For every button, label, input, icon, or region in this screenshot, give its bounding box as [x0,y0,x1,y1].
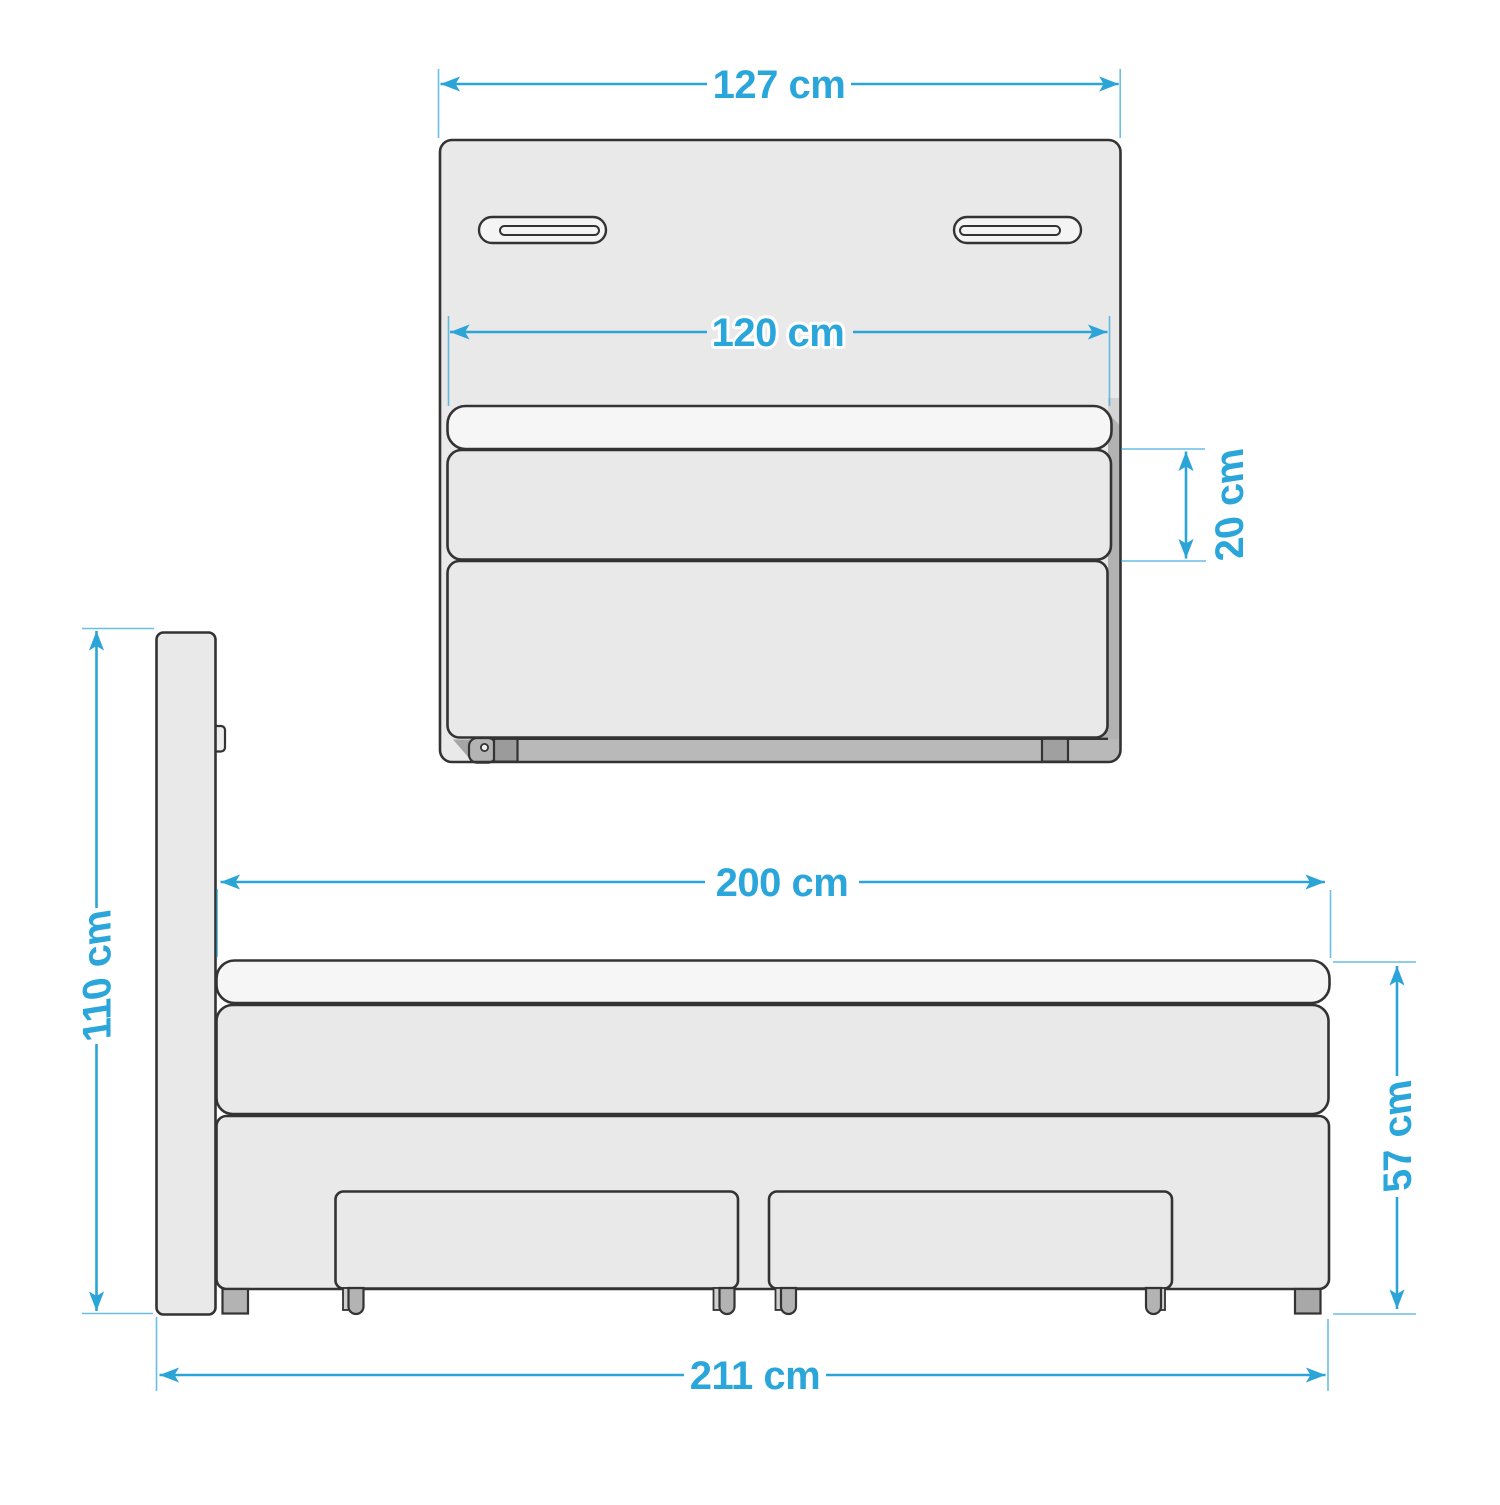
svg-text:57 cm: 57 cm [1375,1077,1420,1195]
svg-text:200 cm: 200 cm [716,861,849,905]
svg-text:127 cm: 127 cm [713,63,846,107]
svg-text:211 cm: 211 cm [690,1354,820,1398]
svg-text:120 cm: 120 cm [712,311,845,355]
svg-text:110 cm: 110 cm [75,907,120,1045]
svg-text:20 cm: 20 cm [1207,446,1252,564]
